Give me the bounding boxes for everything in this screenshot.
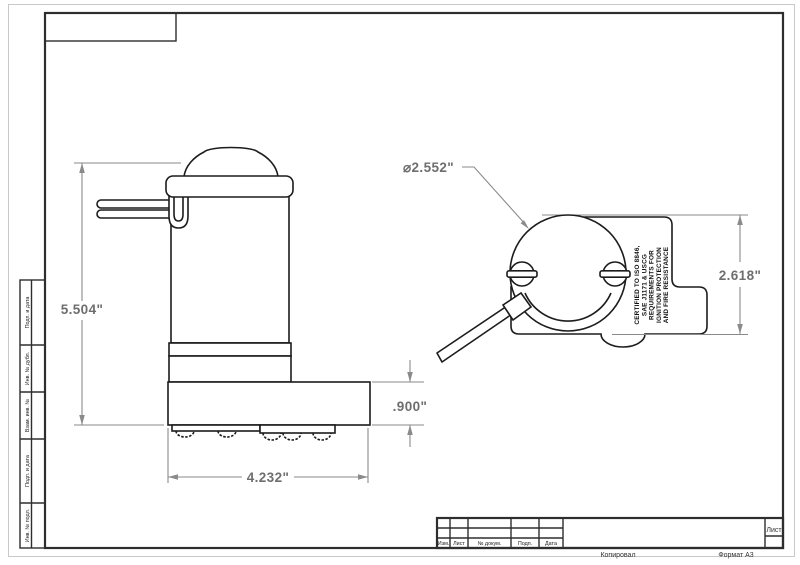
drawing-frame: Подп. и дата Инв. № дубл. Взам. инв. № П…	[9, 5, 795, 560]
left-strip-border	[20, 280, 45, 548]
foot	[218, 431, 236, 437]
dim-side-height: 5.504"	[61, 302, 104, 317]
cert-line: SAE J1171 & USCG	[641, 254, 648, 316]
wire-lead	[437, 302, 518, 362]
cert-line: IGNITION PROTECTION	[656, 247, 663, 323]
wire-leads	[97, 200, 174, 218]
wire-lead-top	[97, 200, 174, 208]
base-feet	[172, 425, 335, 440]
end-view: CERTIFIED TO ISO 8846, SAE J1171 & USCG …	[437, 215, 748, 362]
dimension-base-900: .900"	[372, 360, 427, 447]
pump-base	[168, 382, 370, 425]
pump-flange	[169, 343, 291, 356]
sheet-cell-label: Лист	[766, 527, 782, 534]
drawing-sheet: Подп. и дата Инв. № дубл. Взам. инв. № П…	[0, 0, 800, 565]
side-view	[97, 148, 370, 441]
left-strip-label: Взам. инв. №	[25, 399, 31, 433]
foot	[313, 433, 331, 440]
cert-line: CERTIFIED TO ISO 8846,	[634, 245, 641, 324]
pump-section	[169, 356, 291, 382]
page-edge	[9, 5, 795, 557]
cert-line: AND FIRE RESISTANCE	[663, 246, 670, 323]
screw-slot	[600, 271, 630, 277]
motor-cap	[166, 176, 293, 197]
frame-topleft-box	[45, 13, 176, 41]
title-col-data: Дата	[545, 541, 557, 547]
footer-copy-label: Копировал	[600, 552, 635, 559]
dim-end-height: 2.618"	[719, 268, 762, 283]
dim-side-width: 4.232"	[247, 470, 290, 485]
certification-text: CERTIFIED TO ISO 8846, SAE J1171 & USCG …	[634, 245, 670, 324]
title-col-list: Лист	[453, 541, 465, 547]
motor-dome	[184, 148, 278, 178]
title-col-docnum: № докум.	[478, 541, 502, 547]
foot	[176, 431, 194, 437]
dimension-width-4232: 4.232"	[168, 428, 368, 485]
wire-lead-bottom	[97, 210, 174, 218]
cert-line: REQUIREMENTS FOR	[649, 250, 656, 320]
title-col-izm: Изм.	[438, 541, 450, 547]
frame-left-strip: Подп. и дата Инв. № дубл. Взам. инв. № П…	[20, 280, 45, 548]
screw-slot	[507, 271, 537, 277]
left-strip-label: Инв. № подл.	[25, 509, 31, 543]
dimension-diameter-2552: ⌀2.552"	[403, 160, 529, 229]
foot	[283, 433, 301, 440]
left-strip-label: Подп. и дата	[25, 297, 31, 329]
dim-end-diameter: ⌀2.552"	[403, 160, 454, 175]
title-block: Изм. Лист № докум. Подп. Дата Лист	[437, 518, 783, 548]
title-col-podp: Подп.	[518, 541, 532, 547]
dim-base-height: .900"	[393, 399, 428, 414]
drawing-canvas: Подп. и дата Инв. № дубл. Взам. инв. № П…	[0, 0, 800, 565]
foot	[263, 433, 281, 440]
wire-conduit	[169, 195, 188, 228]
footer-format-label: Формат А3	[718, 552, 753, 559]
left-strip-label: Инв. № дубл.	[25, 352, 31, 385]
left-strip-label: Подп. и дата	[25, 455, 31, 487]
